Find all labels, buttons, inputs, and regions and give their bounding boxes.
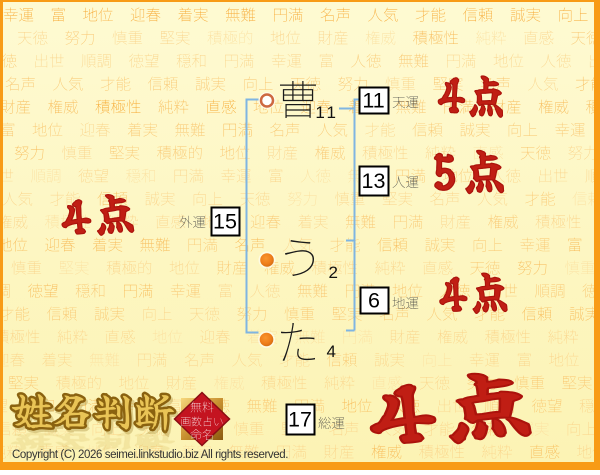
svg-text:Copyright (C) 2026 seimei.link: Copyright (C) 2026 seimei.linkstudio.biz… [12,449,288,461]
svg-text:17: 17 [288,408,312,432]
svg-text:11: 11 [315,103,339,122]
svg-text:4: 4 [327,342,336,361]
svg-text:2: 2 [329,263,338,282]
svg-text:13: 13 [362,169,386,193]
svg-text:11: 11 [362,89,384,113]
svg-text:6: 6 [368,289,380,313]
svg-text:15: 15 [213,210,237,234]
